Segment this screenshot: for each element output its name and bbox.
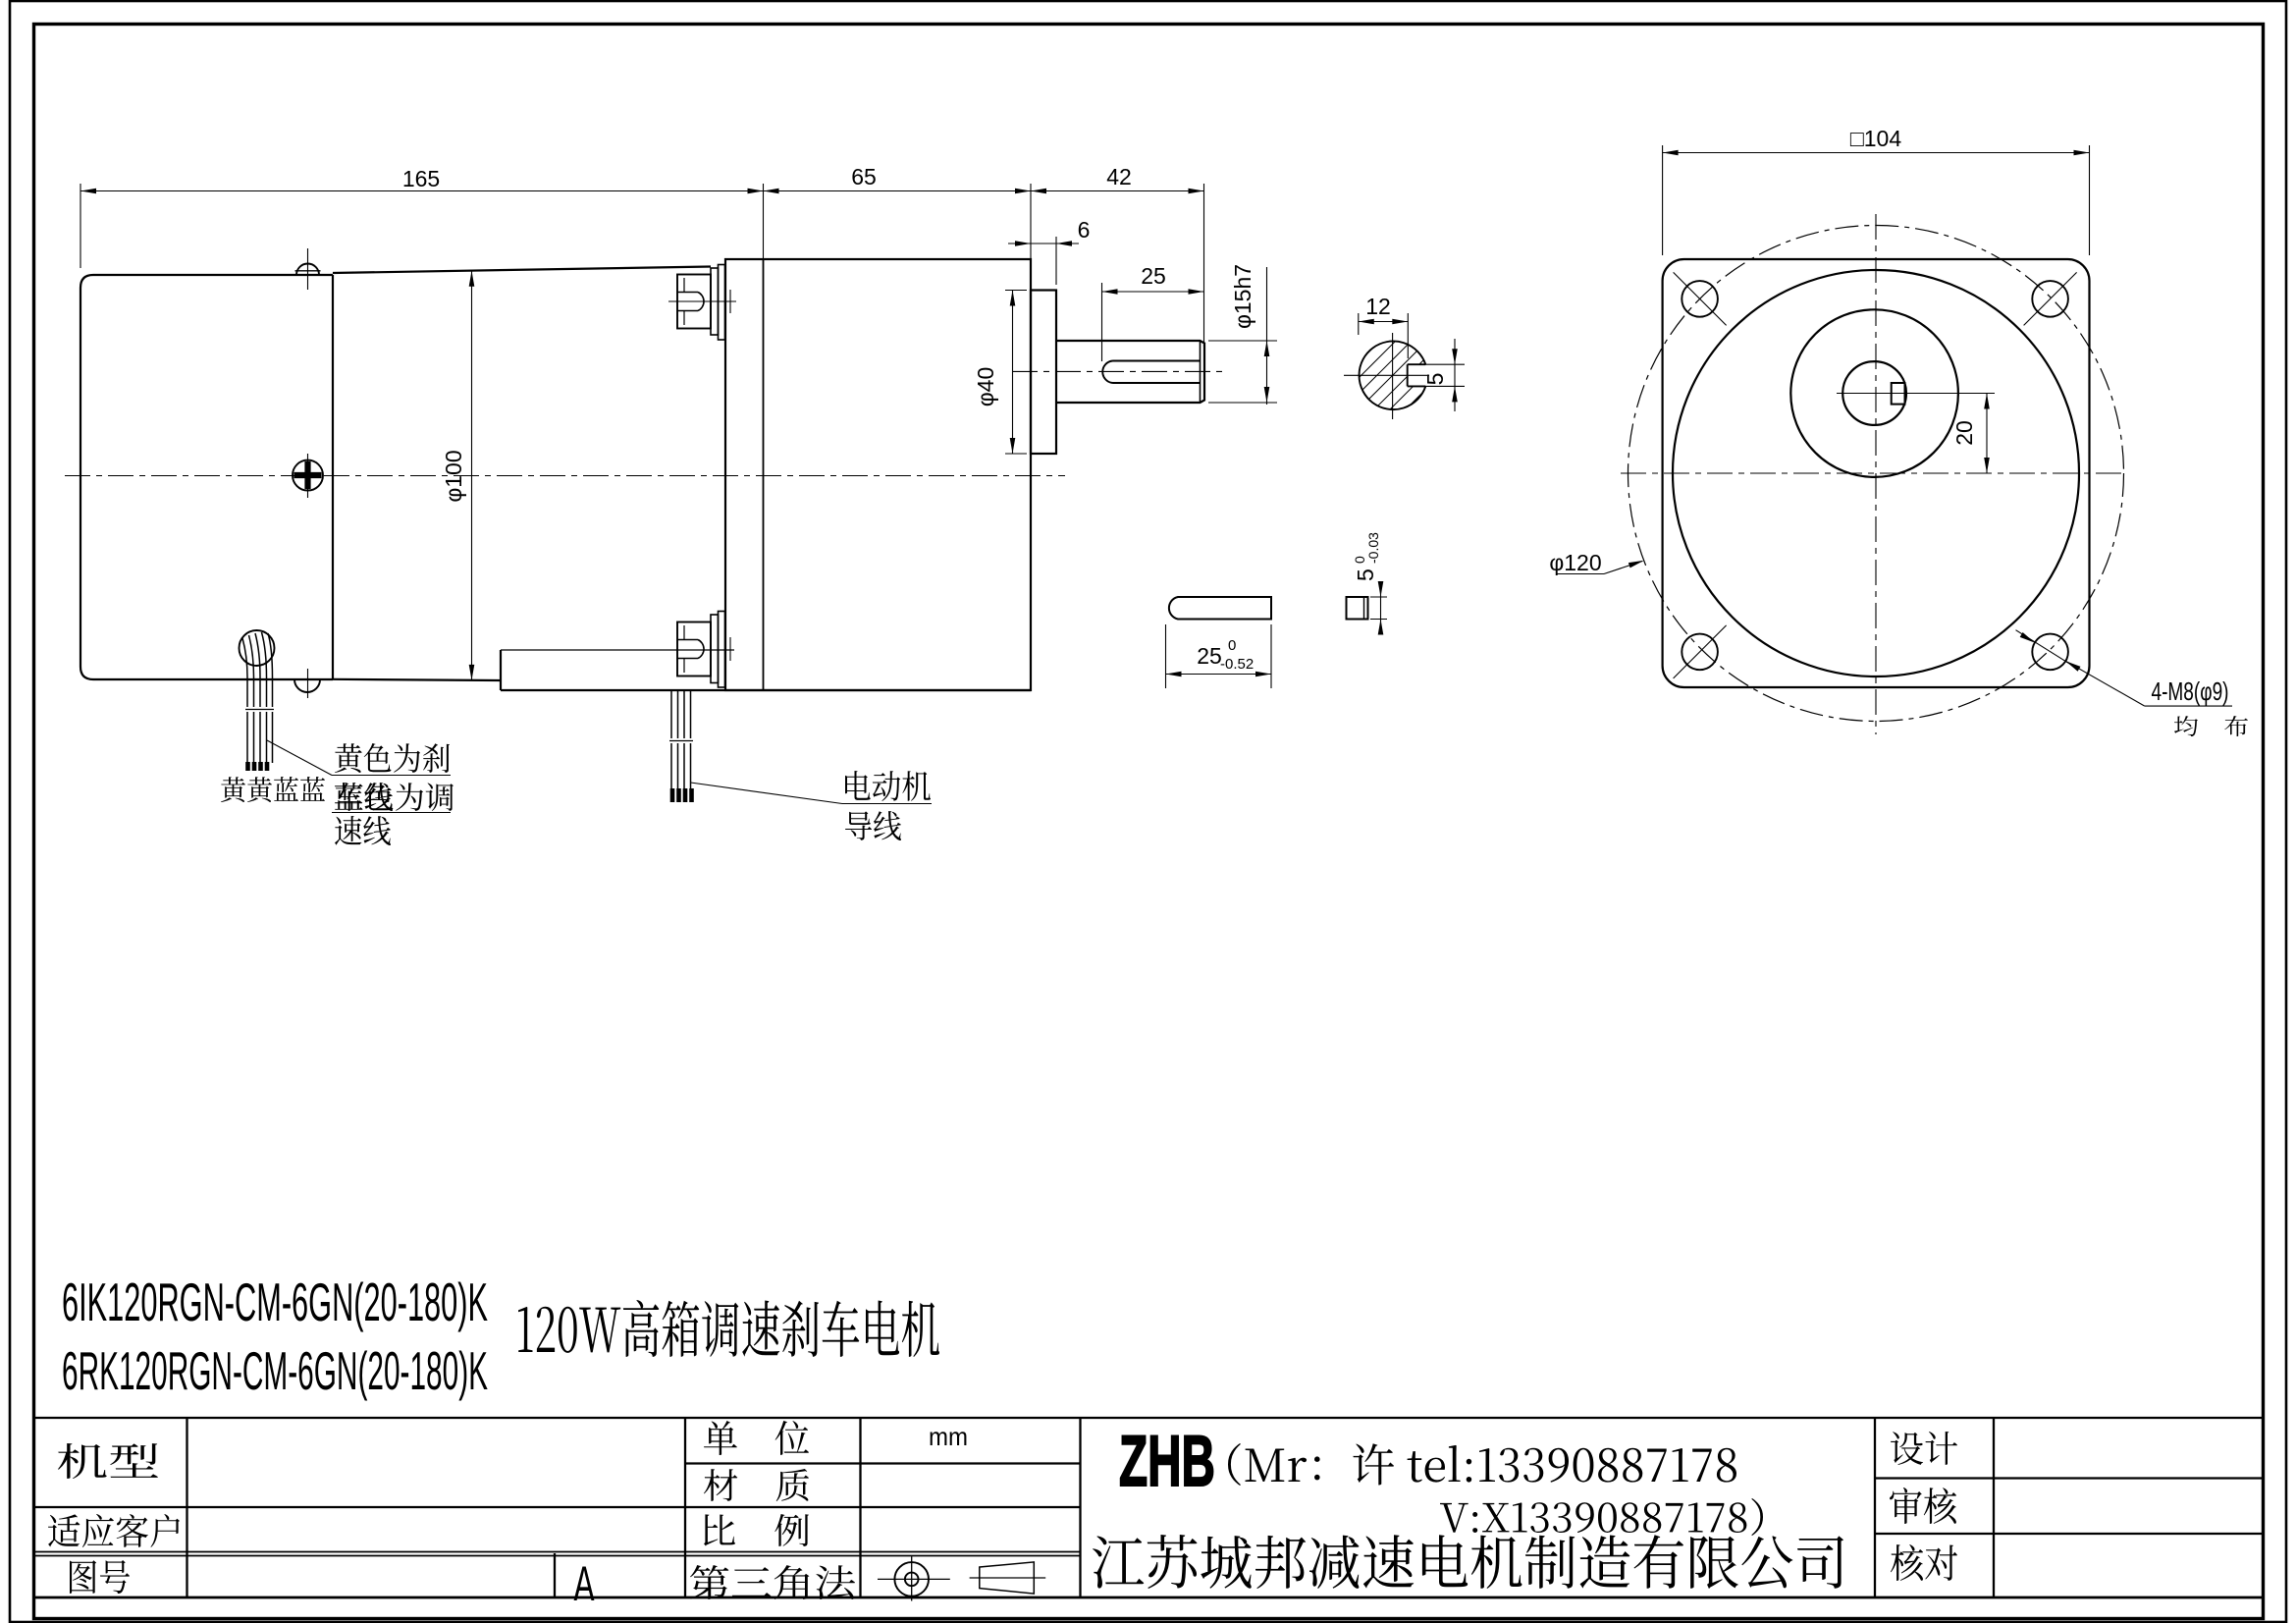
svg-text:φ40: φ40 bbox=[973, 367, 998, 407]
svg-text:0: 0 bbox=[1228, 637, 1236, 654]
svg-text:φ120: φ120 bbox=[1549, 550, 1601, 575]
svg-text:5: 5 bbox=[1422, 373, 1448, 386]
svg-text:6IK120RGN-CM-6GN(20-180)K: 6IK120RGN-CM-6GN(20-180)K bbox=[62, 1271, 488, 1332]
svg-text:65: 65 bbox=[851, 164, 877, 189]
svg-text:42: 42 bbox=[1106, 164, 1132, 189]
svg-text:mm: mm bbox=[929, 1422, 968, 1451]
svg-text:ZHB: ZHB bbox=[1119, 1422, 1215, 1501]
svg-text:φ15h7: φ15h7 bbox=[1230, 264, 1255, 329]
svg-text:□104: □104 bbox=[1850, 126, 1901, 151]
svg-text:20: 20 bbox=[1951, 420, 1977, 446]
svg-text:6: 6 bbox=[1078, 217, 1091, 243]
svg-text:4-M8(φ9): 4-M8(φ9) bbox=[2152, 676, 2229, 706]
svg-text:165: 165 bbox=[402, 166, 440, 191]
svg-text:5: 5 bbox=[1353, 568, 1378, 581]
svg-text:6RK120RGN-CM-6GN(20-180)K: 6RK120RGN-CM-6GN(20-180)K bbox=[62, 1340, 488, 1401]
svg-text:25: 25 bbox=[1141, 263, 1166, 289]
svg-text:12: 12 bbox=[1365, 294, 1391, 319]
svg-text:25: 25 bbox=[1197, 643, 1222, 669]
svg-text:φ100: φ100 bbox=[441, 450, 466, 502]
svg-text:-0.52: -0.52 bbox=[1220, 656, 1254, 673]
svg-text:-0.03: -0.03 bbox=[1365, 532, 1381, 564]
svg-text:A: A bbox=[574, 1556, 595, 1611]
